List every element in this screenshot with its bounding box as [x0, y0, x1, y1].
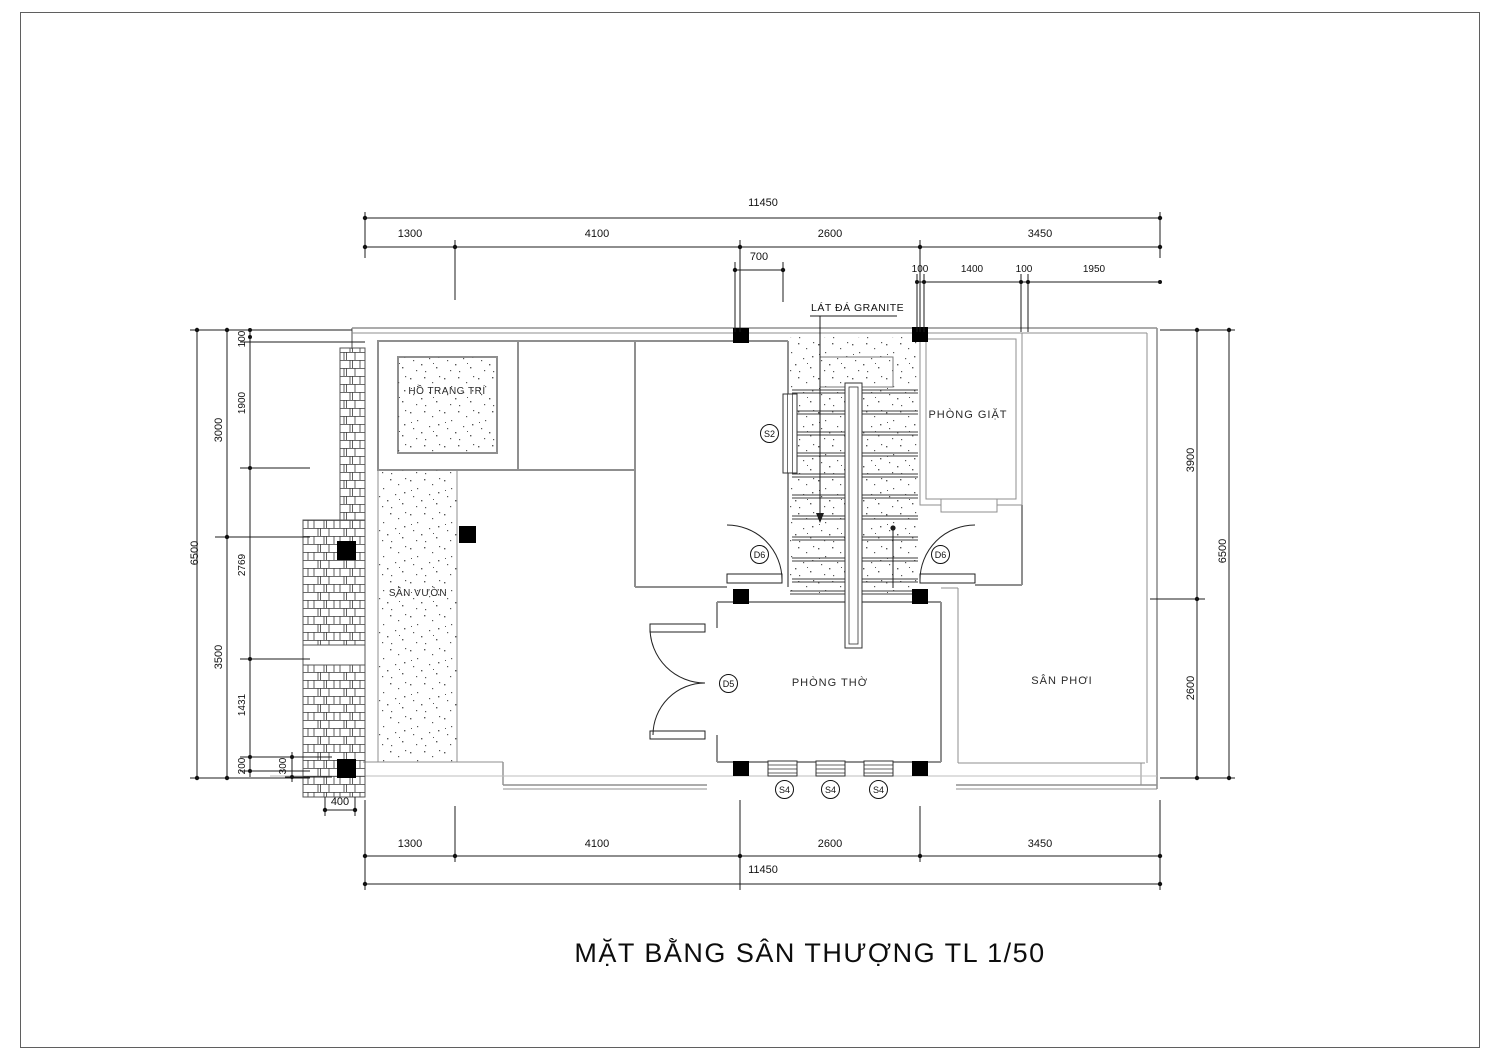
granite-finish-note: LÁT ĐÁ GRANITE — [811, 302, 904, 314]
tag-window-s4-3: S4 — [869, 780, 888, 799]
dim-left-detail-1: 100 — [235, 309, 251, 369]
dim-bottom-seg-3: 2600 — [780, 838, 880, 850]
tag-window-s2: S2 — [760, 424, 779, 443]
room-label-worship: PHÒNG THỜ — [770, 677, 890, 689]
dim-left-overall: 6500 — [187, 523, 203, 583]
dim-ledge-width: 400 — [315, 796, 365, 808]
dim-left-detail-2: 1900 — [235, 373, 251, 433]
dim-bottom-seg-1: 1300 — [360, 838, 460, 850]
dim-left-detail-5: 200 — [235, 736, 251, 796]
drawing-title: MẶT BẰNG SÂN THƯỢNG TL 1/50 — [410, 938, 1210, 969]
dim-left-seg-2: 3500 — [211, 627, 227, 687]
tag-window-s4-2: S4 — [821, 780, 840, 799]
dim-top-detail-3: 100 — [1004, 264, 1044, 275]
dim-top-detail-4: 1950 — [1074, 264, 1114, 275]
dim-top-seg-4: 3450 — [990, 228, 1090, 240]
dim-bottom-overall: 11450 — [663, 864, 863, 876]
floor-plan-drawing — [0, 0, 1500, 1060]
tag-window-s4-1: S4 — [775, 780, 794, 799]
dim-top-seg-3: 2600 — [780, 228, 880, 240]
dim-right-seg-2: 2600 — [1183, 658, 1199, 718]
tag-door-d6-right: D6 — [931, 545, 950, 564]
dim-left-detail-3: 2769 — [235, 535, 251, 595]
tag-door-d5: D5 — [719, 674, 738, 693]
dim-left-seg-1: 3000 — [211, 400, 227, 460]
room-label-laundry: PHÒNG GIẶT — [908, 409, 1028, 421]
dim-top-detail-2: 1400 — [952, 264, 992, 275]
dim-bottom-seg-2: 4100 — [547, 838, 647, 850]
dim-ledge-depth: 300 — [276, 736, 292, 796]
drawing-sheet: { "title": "MẶT BẰNG SÂN THƯỢNG TL 1/50"… — [0, 0, 1500, 1060]
dim-right-seg-1: 3900 — [1183, 430, 1199, 490]
dim-top-offset: 700 — [734, 251, 784, 263]
room-label-decorative-pond: HỒ TRANG TRÍ — [387, 386, 507, 397]
dim-top-overall: 11450 — [663, 197, 863, 209]
dim-top-seg-1: 1300 — [360, 228, 460, 240]
tag-door-d6-left: D6 — [750, 545, 769, 564]
room-label-drying-yard: SÂN PHƠI — [1002, 675, 1122, 687]
room-label-garden: SÂN VƯỜN — [368, 588, 468, 599]
dim-right-overall: 6500 — [1215, 521, 1231, 581]
dim-top-seg-2: 4100 — [547, 228, 647, 240]
dim-bottom-seg-4: 3450 — [990, 838, 1090, 850]
dim-left-detail-4: 1431 — [235, 675, 251, 735]
dim-top-detail-1: 100 — [900, 264, 940, 275]
